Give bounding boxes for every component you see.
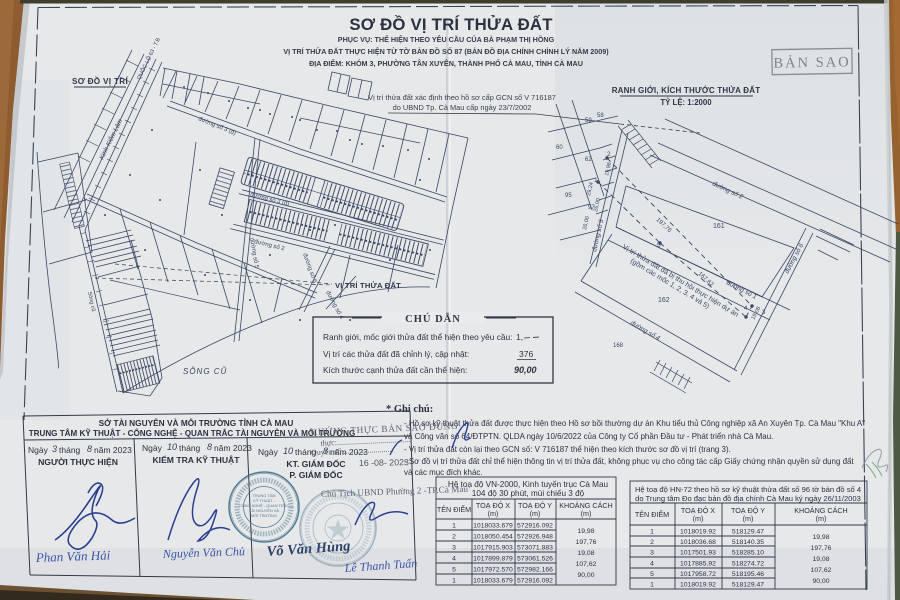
svg-text:19,08: 19,08 <box>577 550 594 557</box>
svg-text:1: 1 <box>650 529 654 536</box>
svg-text:2: 2 <box>607 151 611 158</box>
svg-text:19,08: 19,08 <box>812 556 829 563</box>
svg-text:3: 3 <box>52 444 57 454</box>
svg-text:1: 1 <box>452 523 456 530</box>
svg-text:10: 10 <box>167 442 177 452</box>
svg-text:90,00: 90,00 <box>577 572 594 579</box>
svg-text:5: 5 <box>657 242 661 249</box>
svg-text:- Hồ sơ kỹ thuật thửa đất được: - Hồ sơ kỹ thuật thửa đất được thực hiện… <box>404 419 865 428</box>
svg-text:197,76: 197,76 <box>576 539 597 546</box>
svg-text:Hệ toạ độ VN-2000, Kinh tuyến: Hệ toạ độ VN-2000, Kinh tuyến trục Cà Ma… <box>448 480 609 489</box>
svg-text:572916.092: 572916.092 <box>517 523 553 530</box>
svg-text:16 -08- 2023: 16 -08- 2023 <box>359 457 409 468</box>
svg-text:Phan Văn Hải: Phan Văn Hải <box>35 547 111 565</box>
svg-text:104 độ 30 phút, múi chiếu 3 độ: 104 độ 30 phút, múi chiếu 3 độ <box>472 489 585 498</box>
svg-text:1018033.679: 1018033.679 <box>473 578 513 585</box>
svg-text:10: 10 <box>283 446 293 456</box>
svg-text:BẢN SAO: BẢN SAO <box>773 53 851 71</box>
svg-text:Ranh giới, mốc giới thửa đất t: Ranh giới, mốc giới thửa đất thể hiện th… <box>323 332 512 342</box>
svg-text:Hệ toạ độ HN-72 theo hồ sơ kỹ: Hệ toạ độ HN-72 theo hồ sơ kỹ thuật thửa… <box>635 485 861 494</box>
svg-text:do UBND Tp. Cà Mau cấp ngày 23: do UBND Tp. Cà Mau cấp ngày 23/7/2002 <box>393 103 532 112</box>
svg-text:518274.72: 518274.72 <box>732 561 764 568</box>
svg-text:573071.883: 573071.883 <box>517 545 553 552</box>
svg-text:90,00: 90,00 <box>812 578 829 585</box>
svg-text:1018019.92: 1018019.92 <box>680 582 716 589</box>
svg-text:- Sơ đồ vị trí thửa đất chỉ th: - Sơ đồ vị trí thửa đất chỉ thể hiện thô… <box>404 457 854 466</box>
svg-text:95: 95 <box>565 193 572 199</box>
svg-text:197,76: 197,76 <box>811 545 832 552</box>
svg-text:P. GIÁM ĐỐC: P. GIÁM ĐỐC <box>289 469 342 480</box>
svg-text:PHỤC VỤ: THỂ HIỆN THEO YÊU CẦU: PHỤC VỤ: THỂ HIỆN THEO YÊU CẦU CỦA BÀ PH… <box>338 34 555 44</box>
svg-text:161: 161 <box>713 223 725 230</box>
svg-text:8: 8 <box>87 444 92 454</box>
svg-text:3: 3 <box>650 550 654 557</box>
svg-text:ĐỊA ĐIỂM: KHÓM 3, PHƯỜNG TÂN X: ĐỊA ĐIỂM: KHÓM 3, PHƯỜNG TÂN XUYÊN, THÀN… <box>309 58 583 68</box>
svg-text:1017958.72: 1017958.72 <box>680 571 716 578</box>
svg-text:107,62: 107,62 <box>811 567 832 574</box>
svg-text:572982.166: 572982.166 <box>517 567 553 574</box>
svg-text:(m): (m) <box>743 514 754 523</box>
svg-text:TRUNG TÂM KỸ THUẬT - CÔNG NGHỆ: TRUNG TÂM KỸ THUẬT - CÔNG NGHỆ - QUAN TR… <box>29 429 356 438</box>
svg-text:59: 59 <box>585 118 592 124</box>
svg-text:(m): (m) <box>816 514 827 523</box>
svg-text:1018036.68: 1018036.68 <box>680 539 716 546</box>
svg-text:2: 2 <box>452 534 456 541</box>
svg-text:Kích thước cạnh thửa đất cần t: Kích thước cạnh thửa đất cần thể hiện: <box>323 365 467 375</box>
svg-text:SƠ ĐỒ VỊ TRÍ THỬA ĐẤT: SƠ ĐỒ VỊ TRÍ THỬA ĐẤT <box>349 15 553 34</box>
svg-text:168: 168 <box>613 343 624 349</box>
svg-text:(m): (m) <box>488 509 499 518</box>
svg-text:1,: 1, <box>516 332 523 342</box>
svg-text:573061.526: 573061.526 <box>517 556 553 563</box>
svg-text:1017915.903: 1017915.903 <box>473 545 513 552</box>
svg-text:NGƯỜI THỰC HIỆN: NGƯỜI THỰC HIỆN <box>38 456 118 467</box>
svg-text:90,00: 90,00 <box>514 365 537 375</box>
svg-text:MÔI TRƯỜNG: MÔI TRƯỜNG <box>251 513 277 518</box>
svg-text:VỊ TRÍ THỬA ĐẤT THỰC HIỆN TỪ T: VỊ TRÍ THỬA ĐẤT THỰC HIỆN TỪ TỜ BẢN ĐỒ S… <box>283 46 609 56</box>
svg-text:và Công văn số 64/ĐTPTN. QLDA: và Công văn số 64/ĐTPTN. QLDA ngày 10/6/… <box>404 432 773 441</box>
svg-text:1017501.93: 1017501.93 <box>680 550 716 557</box>
svg-text:tháng: tháng <box>59 445 81 455</box>
svg-text:(m): (m) <box>530 509 541 518</box>
svg-text:TỶ LỆ: 1:2000: TỶ LỆ: 1:2000 <box>660 98 712 107</box>
svg-text:SÔNG CŨ: SÔNG CŨ <box>183 367 227 376</box>
svg-text:2: 2 <box>650 539 654 546</box>
svg-text:Vị trí thửa đất xác định theo: Vị trí thửa đất xác định theo hồ sơ cấp … <box>368 93 556 102</box>
svg-text:TÊN ĐIỂM: TÊN ĐIỂM <box>635 510 669 519</box>
svg-text:Ngày: Ngày <box>28 445 49 455</box>
svg-text:SƠ ĐỒ VỊ TRÍ: SƠ ĐỒ VỊ TRÍ <box>72 75 129 86</box>
svg-text:572926.948: 572926.948 <box>517 534 553 541</box>
svg-text:1: 1 <box>452 578 456 585</box>
svg-text:do Trung tâm Đo đạc bản đồ địa: do Trung tâm Đo đạc bản đồ địa chính Cà … <box>635 494 861 503</box>
svg-text:năm 2023: năm 2023 <box>214 443 252 453</box>
svg-text:572916.092: 572916.092 <box>517 578 553 585</box>
svg-text:376: 376 <box>519 349 533 359</box>
svg-text:KT. GIÁM ĐỐC: KT. GIÁM ĐỐC <box>286 458 345 469</box>
svg-text:Ngày: Ngày <box>258 447 279 457</box>
svg-text:(m): (m) <box>581 509 592 518</box>
svg-text:1017899.879: 1017899.879 <box>473 556 513 563</box>
svg-text:1018033.679: 1018033.679 <box>473 523 513 530</box>
svg-text:Nguyễn Văn Chủ: Nguyễn Văn Chủ <box>162 544 245 561</box>
svg-text:107,62: 107,62 <box>576 561 597 568</box>
svg-text:RANH GIỚI, KÍCH THƯỚC THỬA ĐẤT: RANH GIỚI, KÍCH THƯỚC THỬA ĐẤT <box>612 85 761 95</box>
svg-text:1018050.454: 1018050.454 <box>473 534 513 541</box>
svg-text:19,98: 19,98 <box>577 528 594 535</box>
svg-text:VỊ TRÍ THỬA ĐẤT: VỊ TRÍ THỬA ĐẤT <box>335 280 401 290</box>
svg-text:1018019.92: 1018019.92 <box>680 529 716 536</box>
svg-text:Vị trí các thửa đất đã chỉnh l: Vị trí các thửa đất đã chỉnh lý, cập nhậ… <box>323 349 469 359</box>
svg-text:62: 62 <box>585 157 592 163</box>
svg-text:19,98: 19,98 <box>812 534 829 541</box>
svg-text:SỞ TÀI NGUYÊN VÀ MÔI TRƯỜNG TỈ: SỞ TÀI NGUYÊN VÀ MÔI TRƯỜNG TỈNH CÀ MAU <box>99 417 294 428</box>
svg-text:4: 4 <box>650 561 654 568</box>
svg-text:518129.47: 518129.47 <box>732 582 764 589</box>
svg-text:tháng: tháng <box>179 443 201 453</box>
svg-text:162: 162 <box>658 297 670 304</box>
svg-text:TÊN ĐIỂM: TÊN ĐIỂM <box>437 505 471 514</box>
svg-text:518285.10: 518285.10 <box>732 550 764 557</box>
svg-text:5: 5 <box>650 571 654 578</box>
svg-text:5: 5 <box>452 567 456 574</box>
svg-text:3: 3 <box>452 545 456 552</box>
svg-text:1017972.570: 1017972.570 <box>473 567 513 574</box>
svg-text:KIỂM TRA KỸ THUẬT: KIỂM TRA KỸ THUẬT <box>152 454 240 465</box>
svg-text:năm 2023: năm 2023 <box>94 445 132 455</box>
svg-text:60: 60 <box>556 145 563 151</box>
svg-text:CHÚ DẪN: CHÚ DẪN <box>405 312 461 325</box>
svg-text:4: 4 <box>452 556 456 563</box>
svg-text:và các mục đích khác.: và các mục đích khác. <box>404 468 483 477</box>
svg-text:(m): (m) <box>693 514 704 523</box>
svg-text:1: 1 <box>650 582 654 589</box>
svg-text:58: 58 <box>597 113 604 119</box>
svg-text:8: 8 <box>207 442 212 452</box>
svg-text:1017885.92: 1017885.92 <box>680 561 716 568</box>
svg-text:518195.46: 518195.46 <box>732 571 764 578</box>
svg-text:518140.35: 518140.35 <box>732 539 764 546</box>
svg-text:Ngày: Ngày <box>142 443 163 453</box>
svg-text:518129.47: 518129.47 <box>732 529 764 536</box>
